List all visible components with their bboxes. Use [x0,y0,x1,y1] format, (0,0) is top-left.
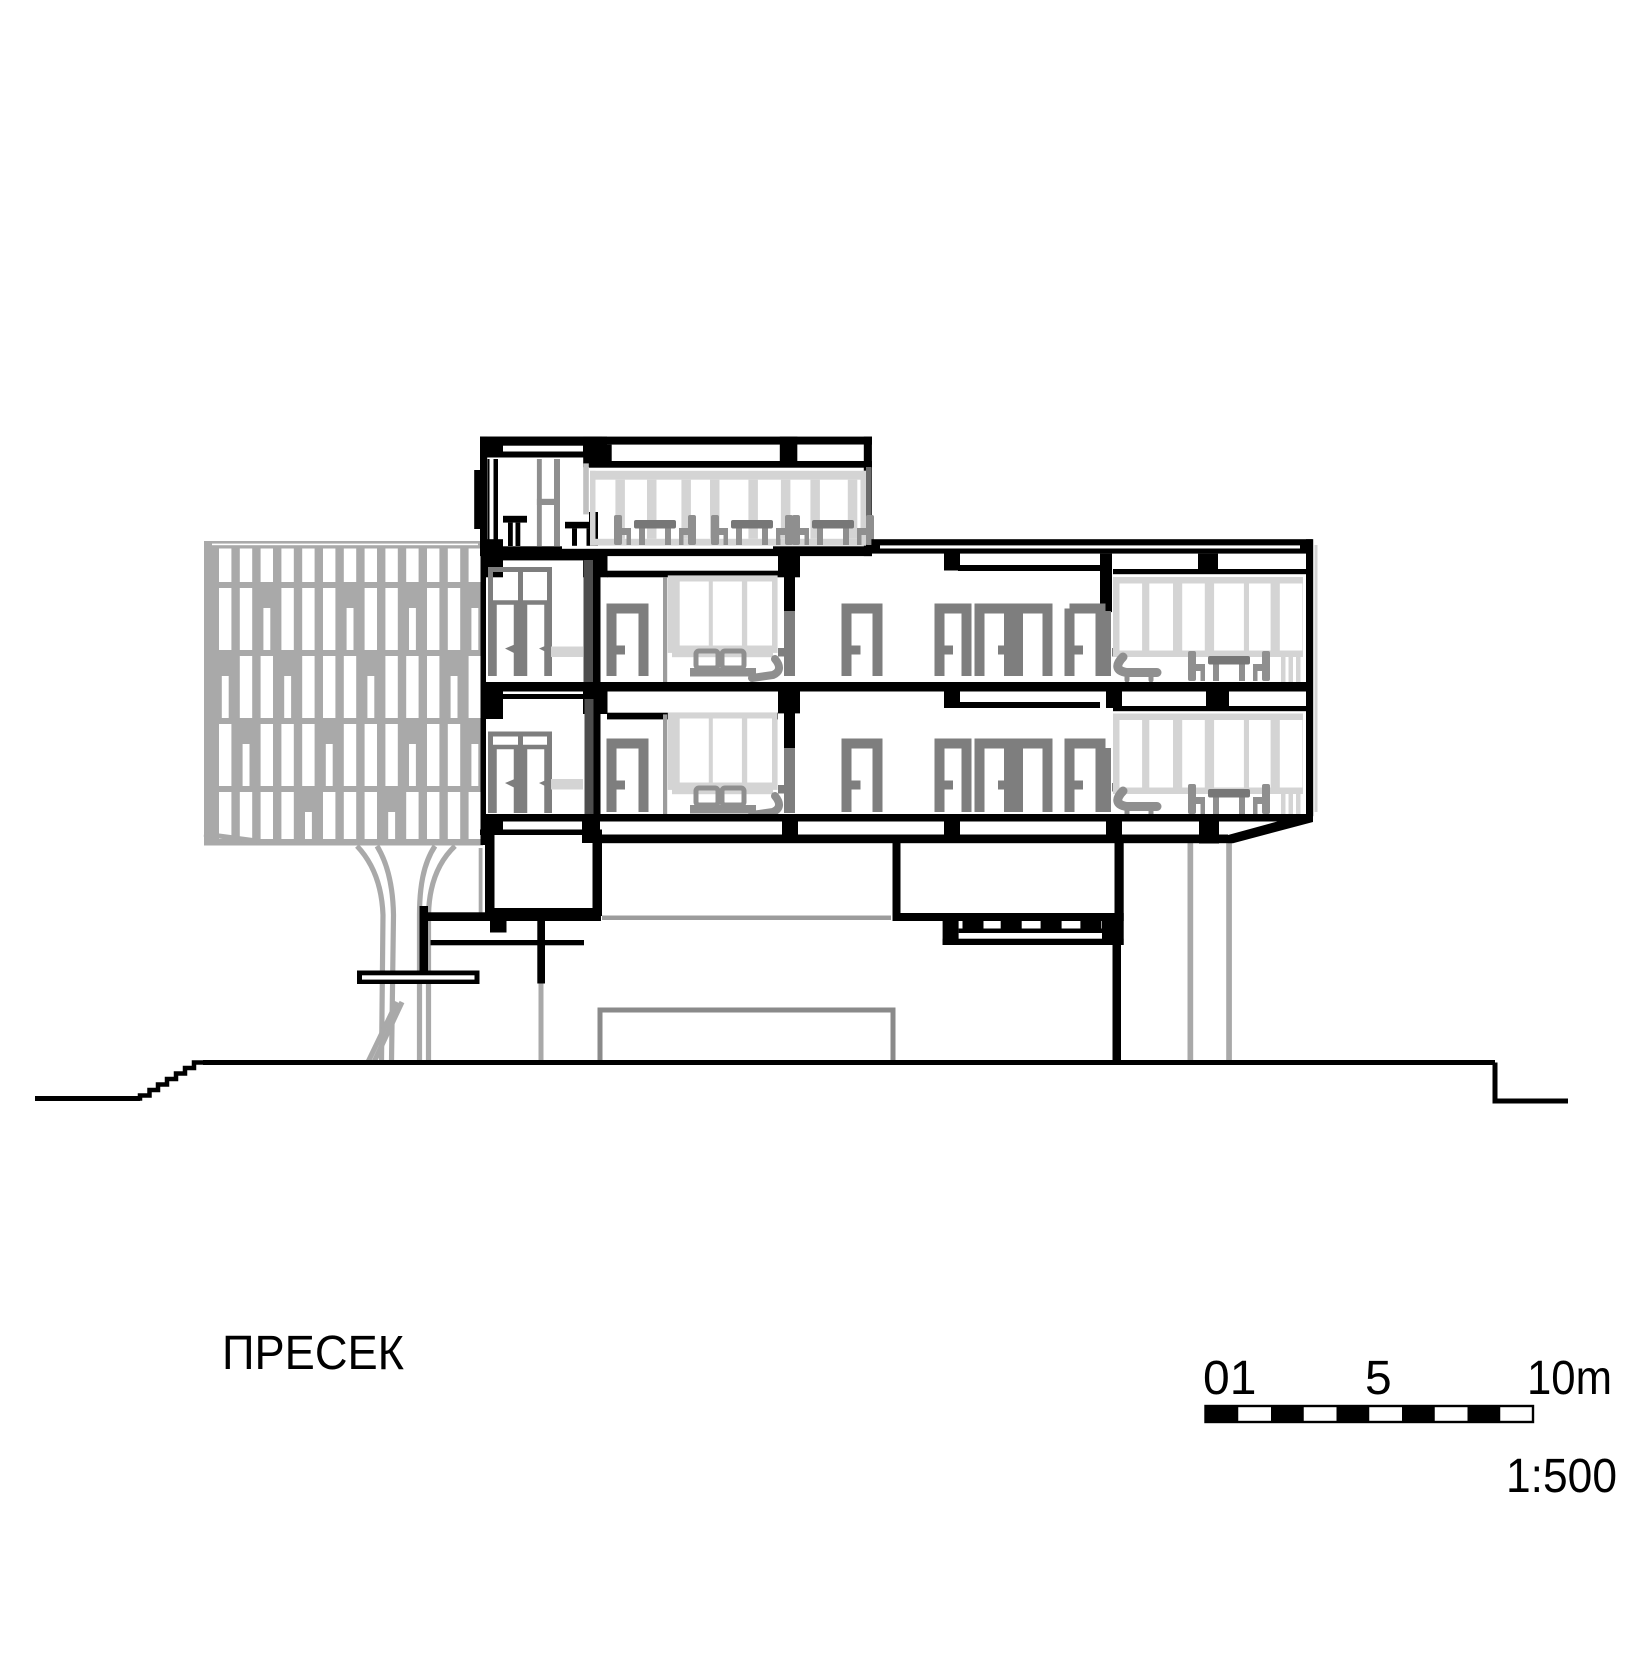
svg-text:5: 5 [1365,1352,1392,1405]
svg-text:01: 01 [1203,1352,1256,1405]
svg-text:ПРЕСЕК: ПРЕСЕК [222,1327,404,1380]
svg-text:1:500: 1:500 [1506,1450,1617,1503]
svg-text:10m: 10m [1527,1352,1612,1405]
